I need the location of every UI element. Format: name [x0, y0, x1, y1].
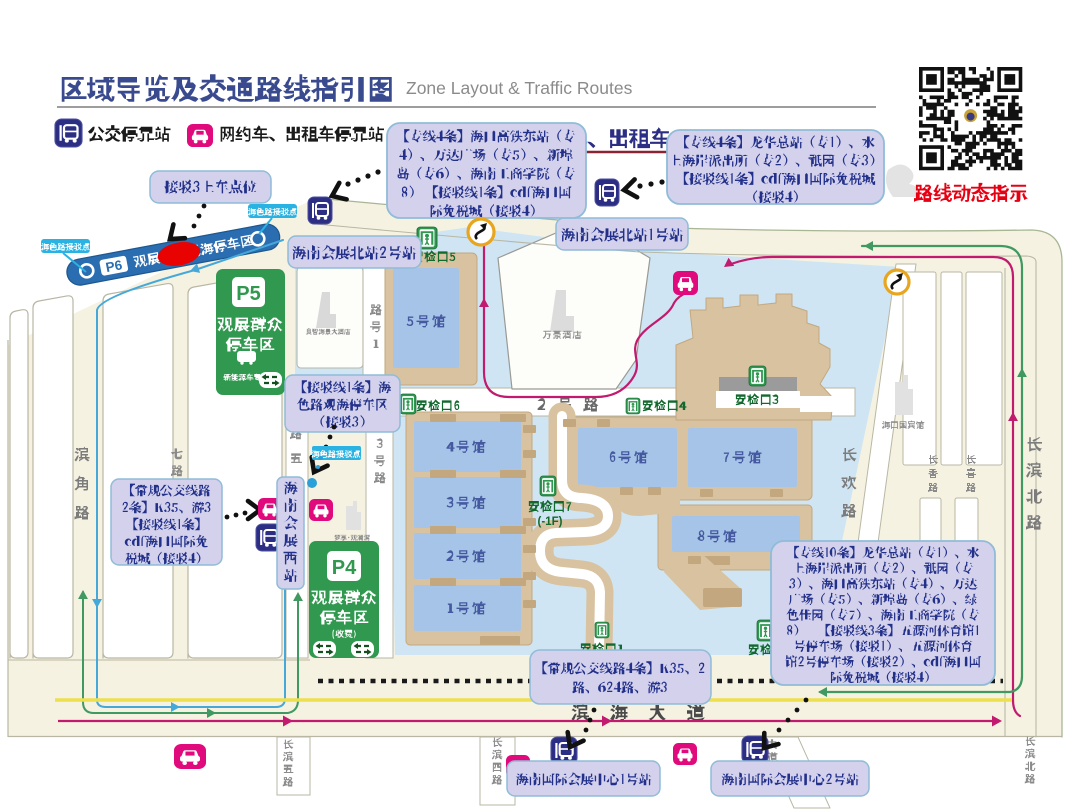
- svg-text:P6: P6: [104, 257, 123, 275]
- svg-text:(-1F): (-1F): [538, 516, 563, 528]
- svg-text:P4: P4: [332, 557, 357, 579]
- svg-text:P5: P5: [236, 283, 260, 305]
- svg-text:Zone Layout & Traffic Routes: Zone Layout & Traffic Routes: [406, 78, 633, 98]
